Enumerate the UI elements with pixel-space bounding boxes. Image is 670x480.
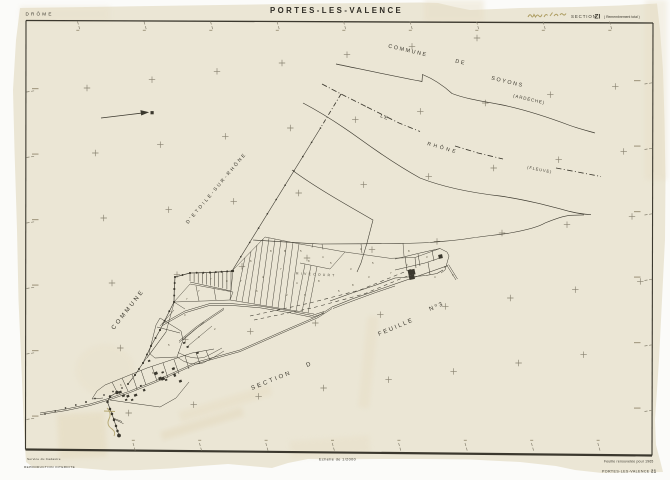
svg-text:( Remembrement total ): ( Remembrement total ) bbox=[604, 15, 640, 19]
svg-text:DRÔME: DRÔME bbox=[26, 11, 54, 17]
svg-text:SECTION: SECTION bbox=[571, 14, 597, 19]
svg-text:Echelle de 1/2000: Echelle de 1/2000 bbox=[319, 458, 356, 462]
svg-text:ZI: ZI bbox=[595, 14, 601, 21]
svg-text:Service du Cadastre: Service du Cadastre bbox=[27, 457, 61, 461]
svg-text:REPRODUCTION INTERDITE: REPRODUCTION INTERDITE bbox=[24, 465, 75, 469]
svg-text:PORTES-LES-VALENCE 21: PORTES-LES-VALENCE 21 bbox=[602, 469, 657, 474]
svg-text:Feuille renouvelée pour 1965: Feuille renouvelée pour 1965 bbox=[604, 460, 654, 464]
svg-text:PORTES-LES-VALENCE: PORTES-LES-VALENCE bbox=[270, 6, 403, 15]
